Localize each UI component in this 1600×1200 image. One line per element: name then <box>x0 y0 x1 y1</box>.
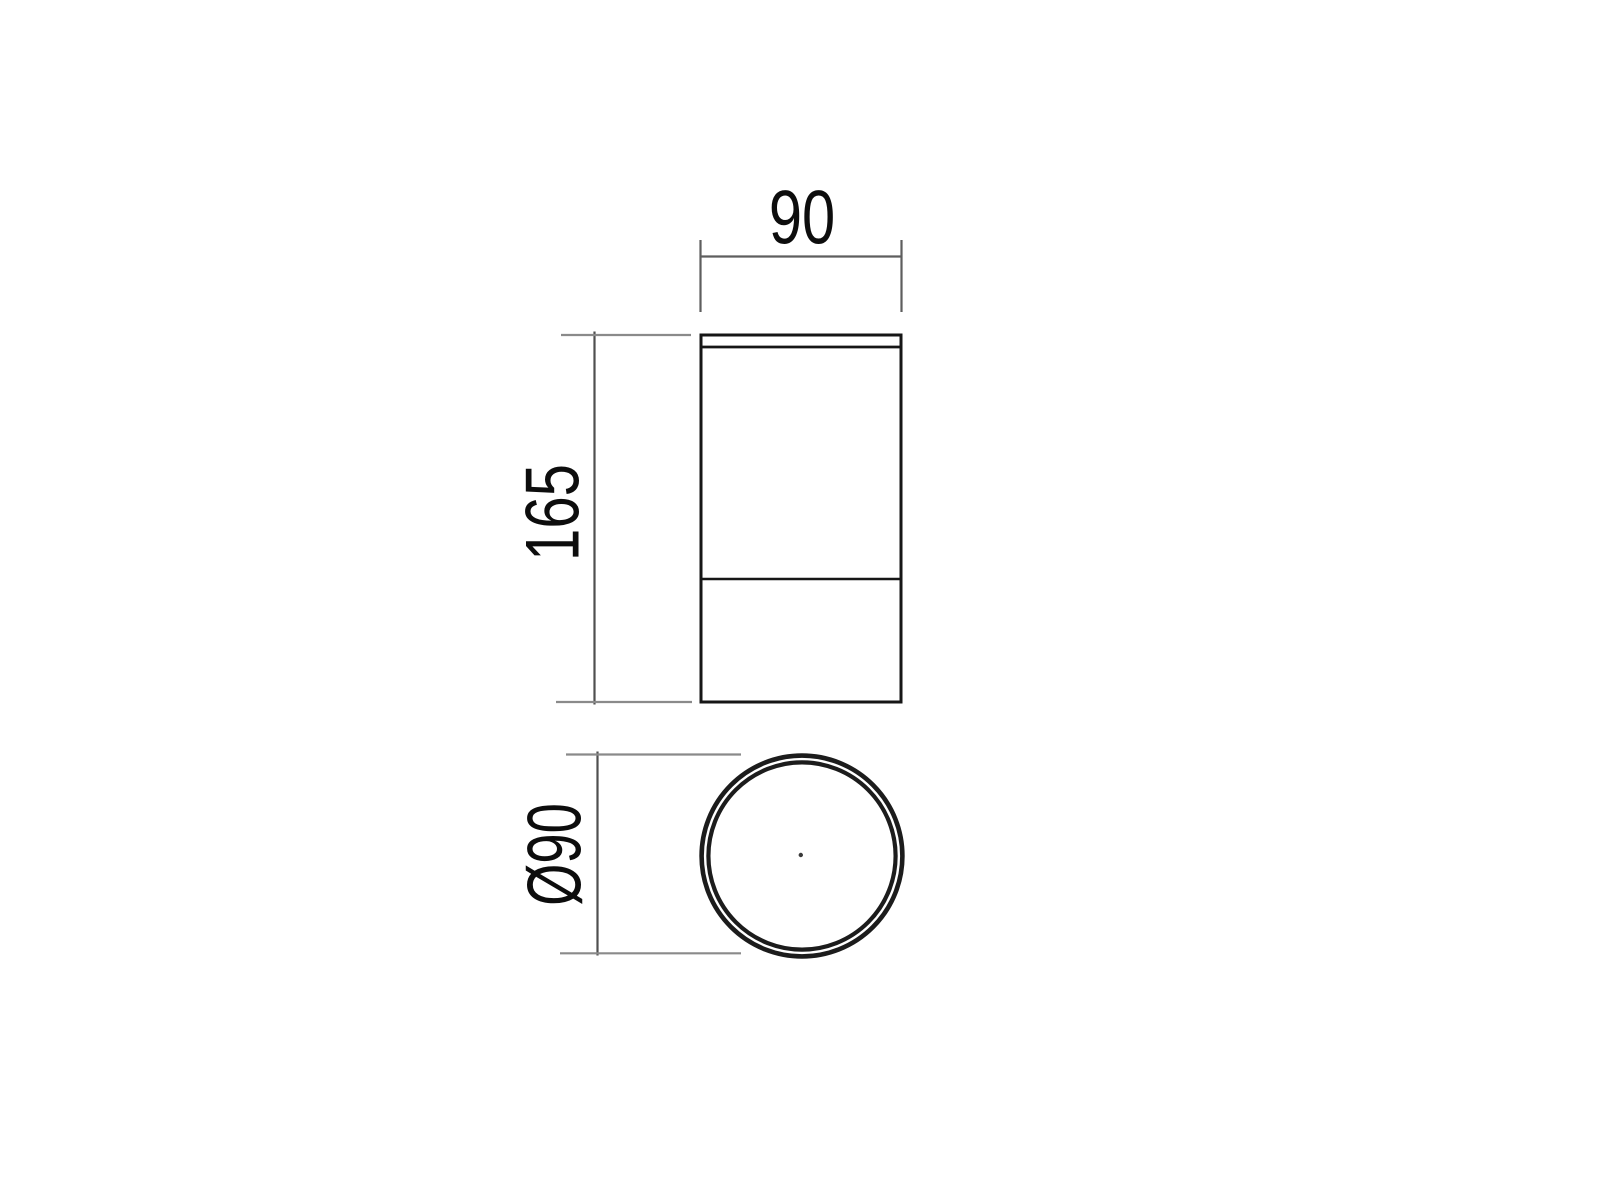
svg-text:90: 90 <box>769 176 835 261</box>
svg-text:Ø90: Ø90 <box>511 803 596 906</box>
svg-text:165: 165 <box>511 464 595 561</box>
